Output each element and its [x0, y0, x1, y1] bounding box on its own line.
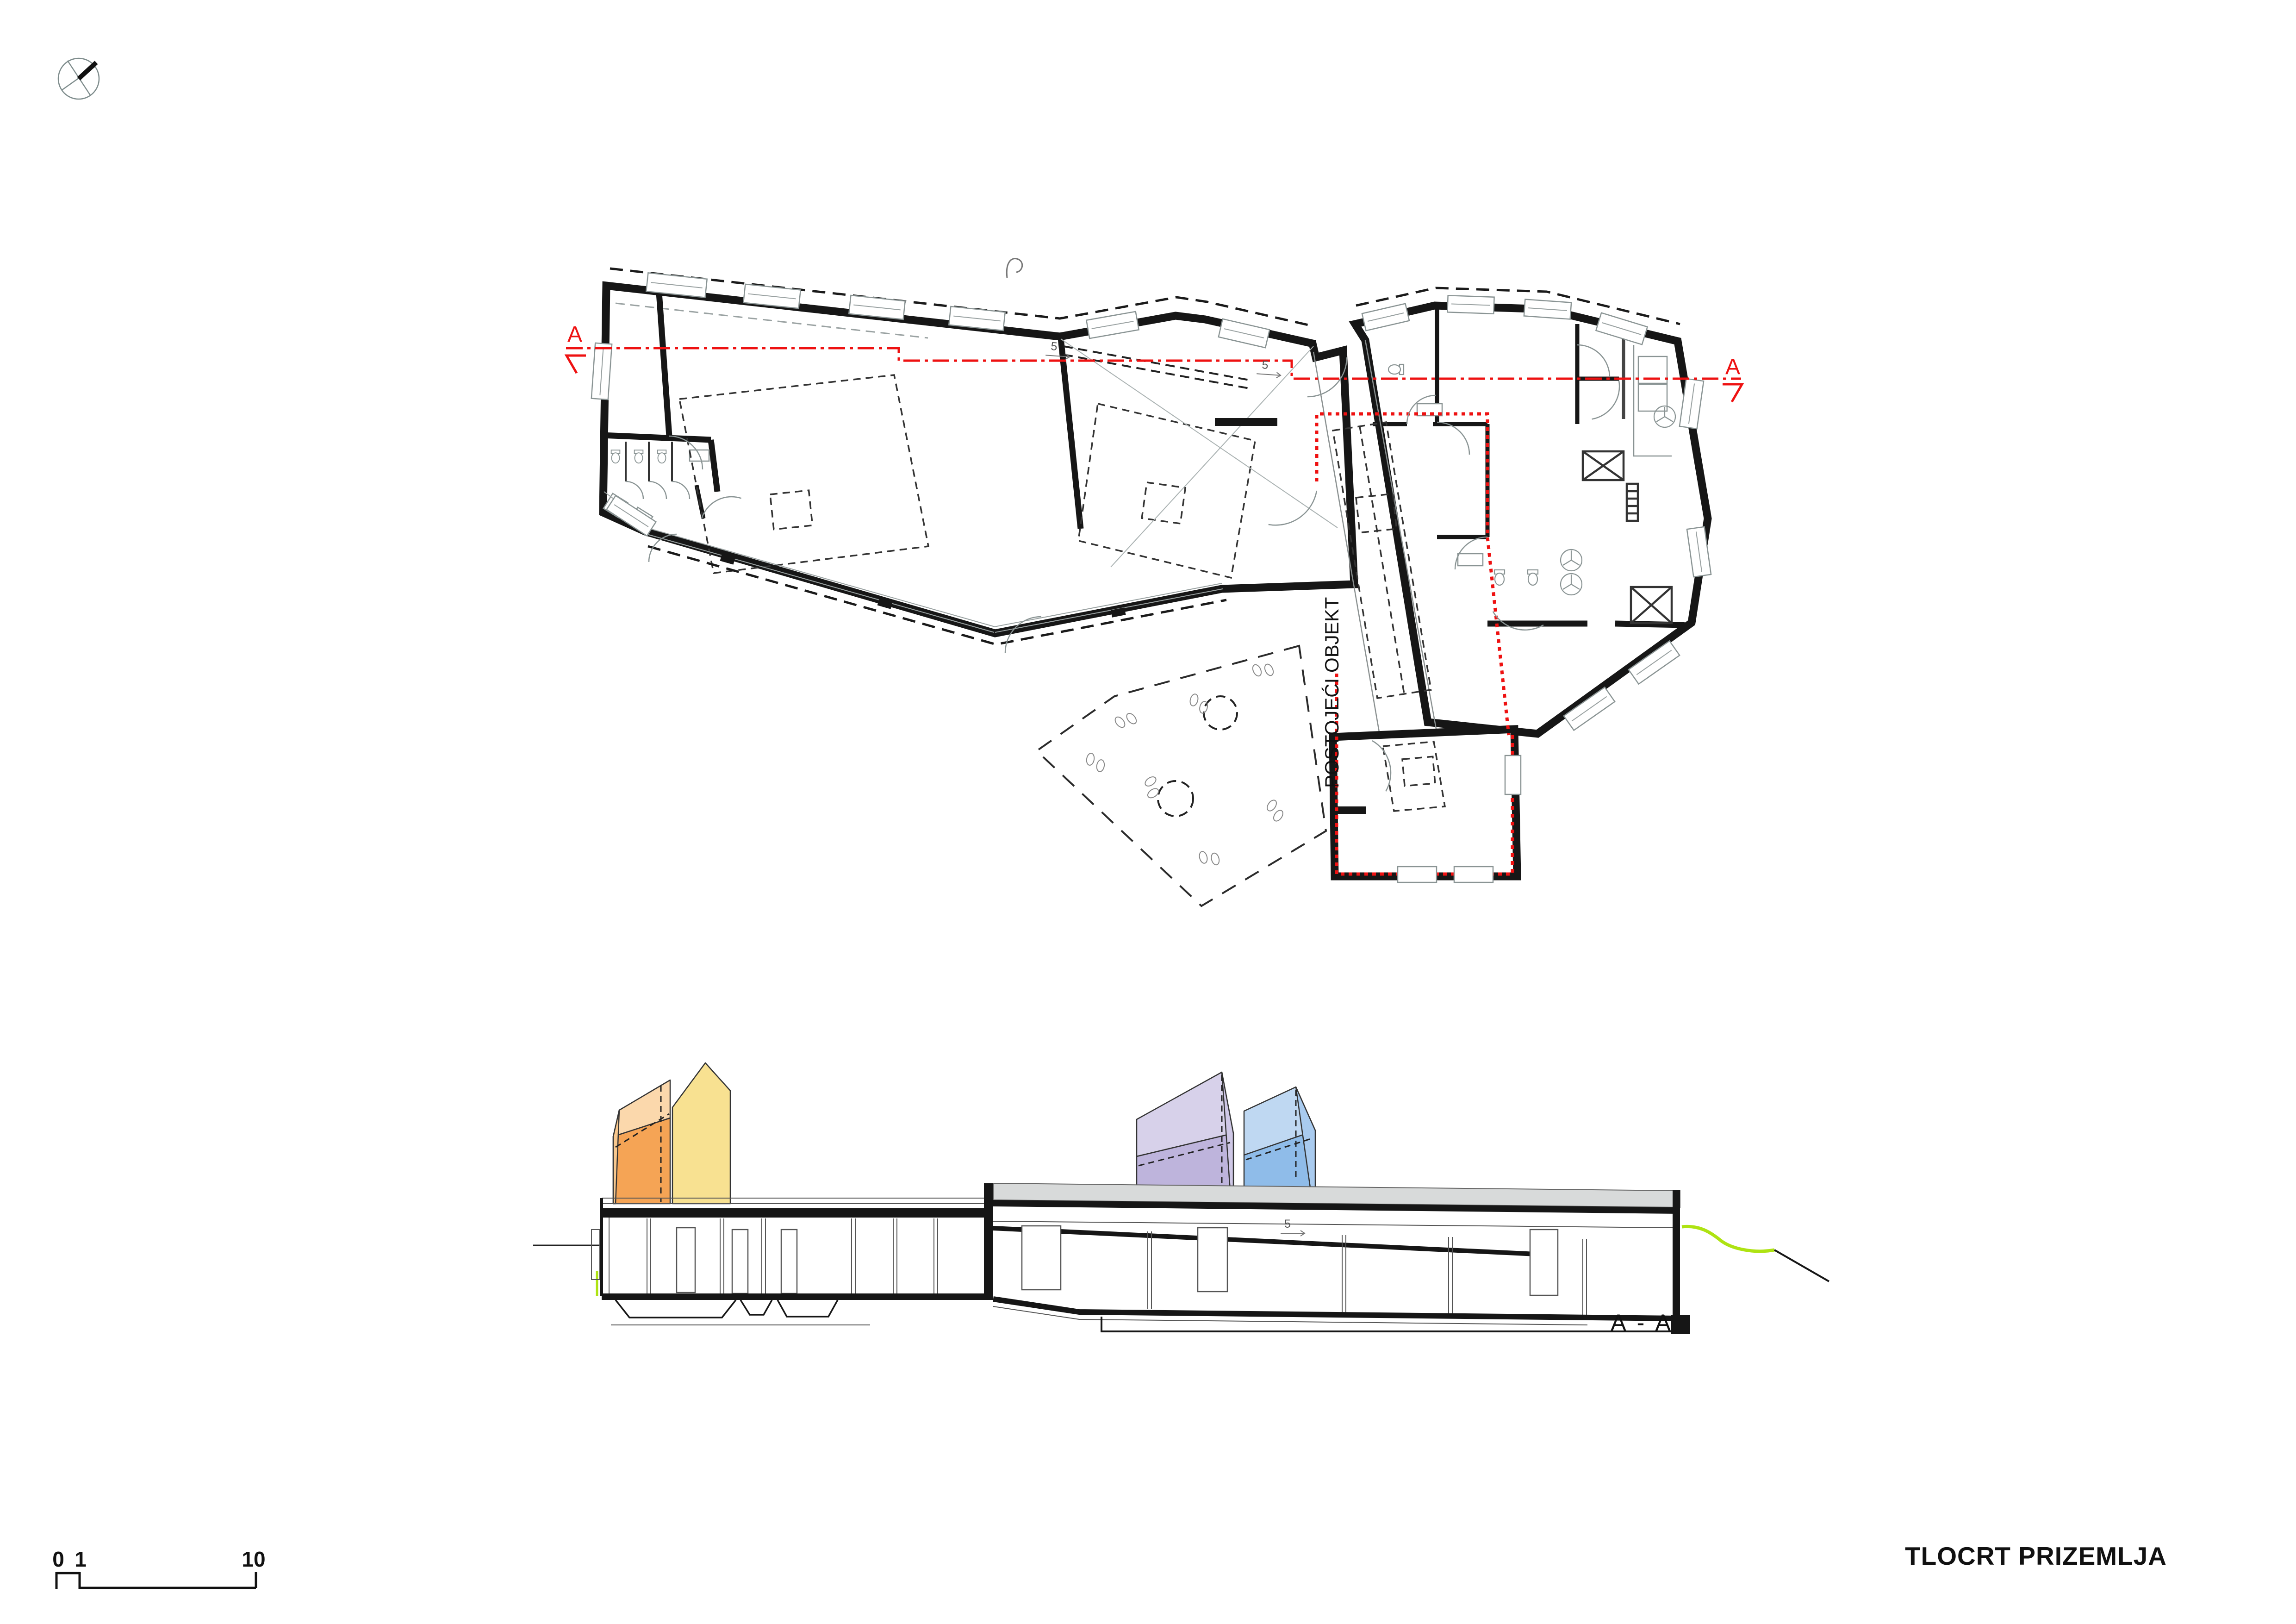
scale-label-10: 10 [242, 1547, 265, 1571]
scale-label-0: 0 [52, 1547, 64, 1571]
existing-room [1333, 729, 1517, 876]
drawing-title: TLOCRT PRIZEMLJA [1905, 1542, 2167, 1570]
svg-text:5: 5 [1262, 358, 1269, 372]
section-marker-a-right: A [1725, 355, 1740, 379]
architectural-sheet: POSTOJEĆI OBJEKT [0, 0, 2296, 1624]
hook-icon [1007, 259, 1022, 278]
terrain-line-green [1682, 1226, 1774, 1251]
existing-object-label: POSTOJEĆI OBJEKT [1321, 597, 1343, 788]
scale-bar: 0 1 10 [52, 1547, 265, 1589]
scale-label-1: 1 [75, 1547, 87, 1571]
section-right-block: 5 [993, 1183, 1690, 1334]
floor-plan: POSTOJEĆI OBJEKT [566, 259, 1742, 906]
purple-house [1137, 1072, 1233, 1204]
section-label: A - A [1611, 1310, 1674, 1336]
playground-pentagon [1037, 646, 1326, 906]
yellow-house [672, 1063, 730, 1204]
svg-text:5: 5 [1051, 340, 1058, 353]
footprint-marks [1085, 659, 1288, 869]
section-marker-a-left: A [567, 322, 582, 347]
section-left-block [602, 1198, 984, 1325]
svg-text:5: 5 [1284, 1218, 1291, 1230]
north-arrow-icon [58, 58, 99, 99]
section-drawing: 5 A - A [533, 1063, 1829, 1336]
lobby-bench [1215, 418, 1277, 426]
roof-houses [613, 1063, 1315, 1204]
section-slope-annotation: 5 [1281, 1218, 1305, 1236]
orange-house [613, 1080, 670, 1204]
